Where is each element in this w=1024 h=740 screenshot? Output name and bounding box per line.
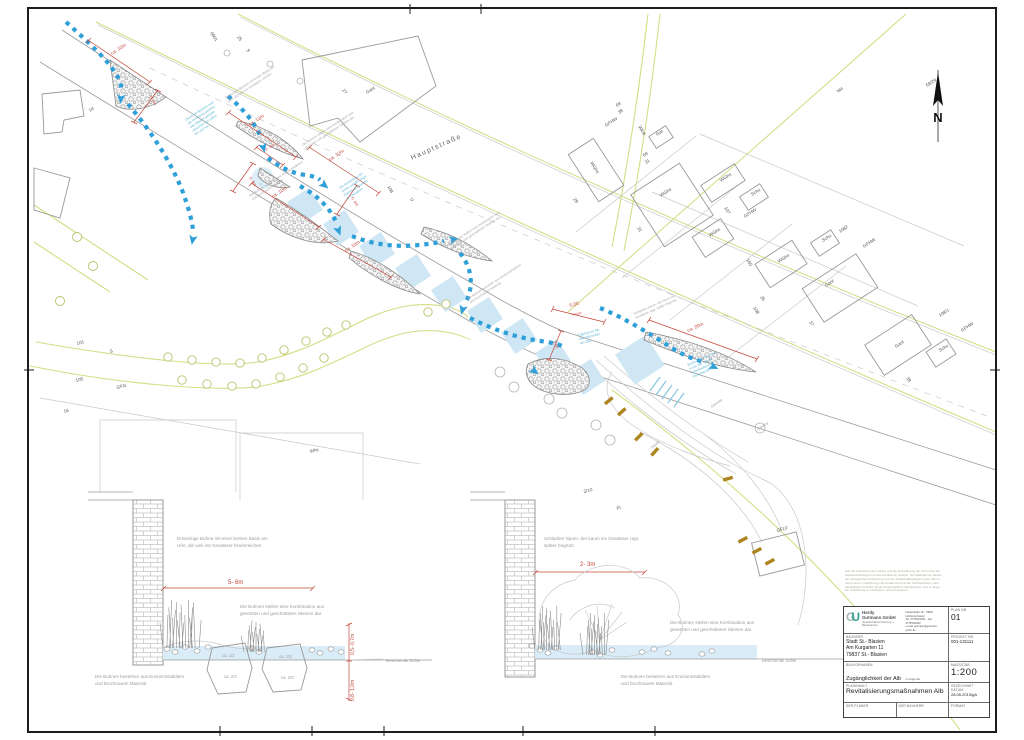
parcel-label: 29 (572, 197, 579, 204)
company-name: Hardy Gutmann GmbH (862, 610, 903, 620)
stone (309, 648, 315, 652)
parcel-label: 108 (752, 306, 761, 316)
plan-annotation: Die Buhnen stellen eine Kombination ausg… (301, 110, 356, 150)
plan-nr-value: 01 (951, 612, 987, 623)
flow-arrowheads (116, 94, 720, 378)
parcel-label: S (245, 48, 251, 53)
section-annotation: Bestehende Sohle (762, 658, 797, 663)
parcel-label: 2/10 (583, 487, 593, 494)
section-annotation: 0,8- 1,0m (350, 680, 356, 701)
parcel-label: 37 (808, 320, 815, 327)
dimension-label: ca. 20m (686, 321, 704, 333)
gezeichnet-value: 28.05.2013/gA (951, 692, 987, 697)
parcel-label: 105 (75, 376, 84, 383)
section-annotation: Schlanker Sporn, der kaum ins Gewässer r… (544, 536, 639, 548)
plan-annotation: Die Buhnen bestehen aus erosionsstabilem… (466, 263, 524, 305)
company-subtitle: Gesellschaft für Planung u. Bauberatung (862, 621, 903, 627)
footpath-lines (590, 356, 806, 625)
parcel-label: WGhs (659, 186, 673, 198)
stone (639, 650, 645, 654)
parcel-label: Whs (309, 447, 320, 454)
section-annotation: 0,5- 0,7m (350, 634, 356, 655)
stone (545, 651, 551, 655)
company-logo: GU (846, 611, 860, 632)
parcel-label: S (109, 348, 113, 354)
parcel-label: 69 (615, 101, 622, 108)
section-annotation: ca. 1/3 (279, 654, 292, 659)
parcel-label: 14 (88, 106, 95, 113)
parcel-label: 31 (636, 226, 643, 233)
company-contact: Hauptstraße 18 · 79862 Höchenschwand Tel… (905, 611, 946, 632)
path-label: Treppe (650, 440, 660, 450)
parcel-label: GFHW (960, 321, 975, 333)
stone (205, 645, 211, 649)
section-annotation: Die Buhnen stellen eine Kombination ausg… (670, 620, 755, 632)
parcel-label: 16 (63, 408, 70, 414)
parcel-label: 107 (723, 206, 732, 216)
parcel-label: U (409, 197, 415, 203)
parcel-label: Pl (616, 505, 621, 511)
plan-annotation: Schlanker Sporn, der kaum insGewässer ra… (633, 294, 678, 320)
planer-caption: DER PLANER (846, 704, 894, 708)
street-label: Hauptstraße (410, 133, 463, 162)
section-annotation: Die Buhnen bestehen aus Erosionsstabilem… (621, 674, 710, 686)
parcel-label: WGhs (777, 252, 791, 264)
reed-plants (532, 606, 561, 650)
parcel-label: 31 (644, 158, 651, 165)
section-annotation: Dreieckige Buhne mit einer breiten Basis… (177, 536, 268, 548)
parcel-label: Schu (750, 187, 762, 197)
parcel-label: 27 (341, 88, 348, 95)
building-outlines (34, 36, 956, 576)
section-annotation: Bestehende Sohle (386, 658, 421, 663)
section-annotation: ca. 2/3 (281, 675, 294, 680)
path-label: Gehweg (756, 421, 769, 432)
parcel-label: 25 (236, 35, 243, 42)
dimension-label: ca. 10m (110, 42, 128, 56)
stone (609, 648, 615, 652)
flow-arrows (66, 22, 720, 378)
dimension-label: 5,00 (569, 301, 580, 309)
parcel-label: Schu (938, 343, 950, 353)
stone (651, 647, 657, 651)
section-annotation: 2- 3m (580, 562, 595, 568)
stone (709, 649, 715, 653)
plan-sheet: Dreieckige Buhnen mit breiter Basis amUf… (0, 0, 1024, 740)
parcel-label: WGhs (589, 161, 601, 175)
parcel-label: GFHW (862, 237, 877, 249)
plan-annotation: Die Buhnen stellen eine Kombination ausg… (447, 210, 502, 250)
format-caption: FORMAT (951, 704, 987, 708)
plan-annotation: Dreieckige Buhnen mit breiter Basis amUf… (224, 65, 277, 104)
parcel-label: Schu (821, 233, 833, 243)
projekt-nr-value: 001-131111 (951, 639, 987, 645)
stone (665, 651, 671, 655)
parcel-label: Gar (655, 128, 665, 137)
stone (338, 650, 344, 654)
parcel-label: 160 (745, 258, 754, 268)
stone (172, 650, 178, 654)
parcel-label: GFG (116, 383, 127, 390)
dimension-label: ca. 12m (328, 148, 346, 162)
parcel-label: NH (836, 86, 844, 94)
legal-note: Erst die Aufweitung des Laufes und die A… (845, 570, 965, 593)
parcel-label: 101 (76, 339, 85, 346)
dimension-label: 5- 6m (350, 196, 360, 208)
stone (317, 651, 323, 655)
bauherr-value: Stadt St.- Blasien Am Kurgarten 11 79837… (846, 639, 946, 658)
section-annotation: ca. 2/3 (224, 674, 237, 679)
section-annotation: ca. 1/3 (222, 653, 235, 658)
path-label: Gehweg (710, 398, 723, 409)
section-annotation: 5- 6m (228, 580, 243, 586)
cross-section-right (470, 492, 850, 677)
parcel-label: 0801 (209, 31, 219, 43)
flow-annotation: Durch die Buhnen wirddie Strömung gelenk… (184, 100, 224, 136)
parcel-label: Gast (365, 85, 376, 95)
north-letter: N (933, 110, 942, 125)
parcel-label: WGhs (719, 171, 733, 183)
gezeichnet-caption: GEZEICHNET · DATUM (951, 684, 987, 692)
parcel-label: 38 (617, 108, 624, 115)
reed-plants (160, 600, 201, 648)
parcel-label: 1082 (838, 224, 850, 234)
stone (194, 649, 200, 653)
bauherr2-caption: DER BAUHERR (899, 704, 947, 708)
parcel-label: 35 (759, 295, 766, 302)
parcel-label: 108 (386, 185, 395, 195)
parcel-label: 69 (642, 151, 649, 158)
cross-section-left (88, 492, 432, 701)
massstab-value: 1:200 (951, 667, 987, 679)
parcel-label: GFHW (604, 116, 619, 128)
bauvorhaben-value: Zugänglichkeit der Alb (846, 676, 901, 682)
section-annotation: Die Buhnen bestehen aus Erosionsstabilem… (95, 674, 184, 686)
planinhalt-value: Revitalisierungsmaßnahmen Alb (846, 688, 946, 696)
parcel-label: 39 (905, 376, 912, 383)
stone (699, 652, 705, 656)
parcel-label: 69/29 (925, 77, 938, 88)
stone (328, 647, 334, 651)
title-block: GU Hardy Gutmann GmbH Gesellschaft für P… (843, 606, 990, 718)
parcel-label: Gast (894, 339, 905, 349)
section-annotation: Die Buhnen stellen eine Kombination ausg… (240, 604, 325, 616)
parcel-label: 108/1 (938, 307, 951, 318)
